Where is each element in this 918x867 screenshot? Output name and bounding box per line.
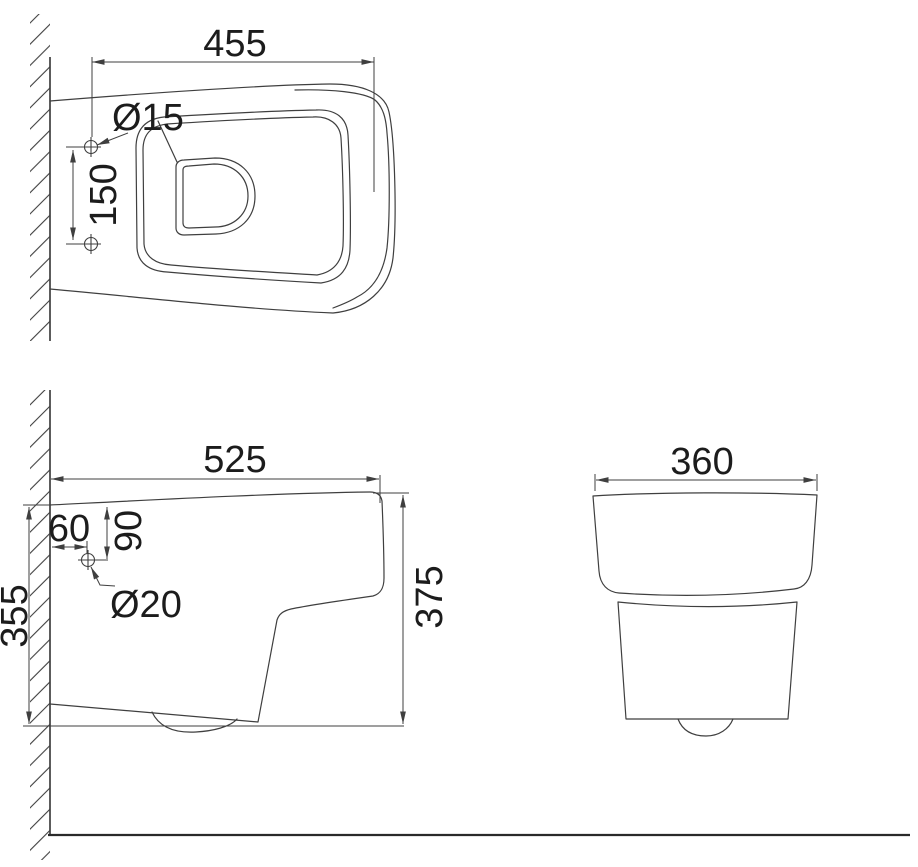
side-profile-outline (50, 492, 384, 722)
callout-hole-diameter-top-label: Ø15 (112, 97, 184, 139)
dim-side-depth: 525 (51, 439, 380, 503)
callout-hole-diameter-top: Ø15 (97, 97, 184, 145)
fixing-hole-side (78, 550, 98, 570)
fixing-hole-upper (81, 137, 101, 157)
dim-side-depth-label: 525 (203, 439, 266, 481)
front-rim-outline (593, 493, 817, 595)
dim-hole-spacing-label: 150 (83, 163, 125, 226)
dim-hole-offset-top-label: 90 (108, 510, 150, 552)
plan-bowl-inner (183, 164, 248, 228)
callout-hole-diameter-side-label: Ø20 (110, 584, 182, 626)
dim-hole-offset-wall: 60 (48, 508, 90, 554)
dim-height-overall: 375 (373, 493, 451, 724)
plan-rim-edge (295, 90, 389, 308)
plan-opening-inner (143, 117, 343, 275)
dim-hole-spacing: 150 (66, 147, 125, 244)
dim-height-overall-label: 375 (409, 565, 451, 628)
plan-bowl-outer (176, 158, 255, 235)
fixing-hole-lower (81, 234, 101, 254)
dim-front-width-label: 360 (670, 441, 733, 483)
dim-hole-offset-wall-label: 60 (48, 508, 90, 550)
dim-top-width-label: 455 (203, 23, 266, 65)
callout-hole-diameter-side: Ø20 (91, 567, 182, 626)
top-view: 455 Ø15 150 (30, 14, 395, 341)
technical-drawing-page: 455 Ø15 150 525 (0, 0, 918, 867)
front-body-outline (618, 602, 797, 719)
bidet-technical-drawing: 455 Ø15 150 525 (0, 0, 918, 867)
dim-height-at-wall-label: 355 (0, 584, 36, 647)
side-view: 525 60 90 Ø20 355 375 (0, 390, 451, 860)
wall-hatching-top (30, 14, 50, 341)
dim-front-width: 360 (595, 441, 817, 491)
front-view: 360 (593, 441, 817, 736)
front-drain-arc (678, 719, 733, 736)
dim-hole-offset-top: 90 (97, 507, 150, 560)
side-drain-arc (152, 712, 237, 732)
